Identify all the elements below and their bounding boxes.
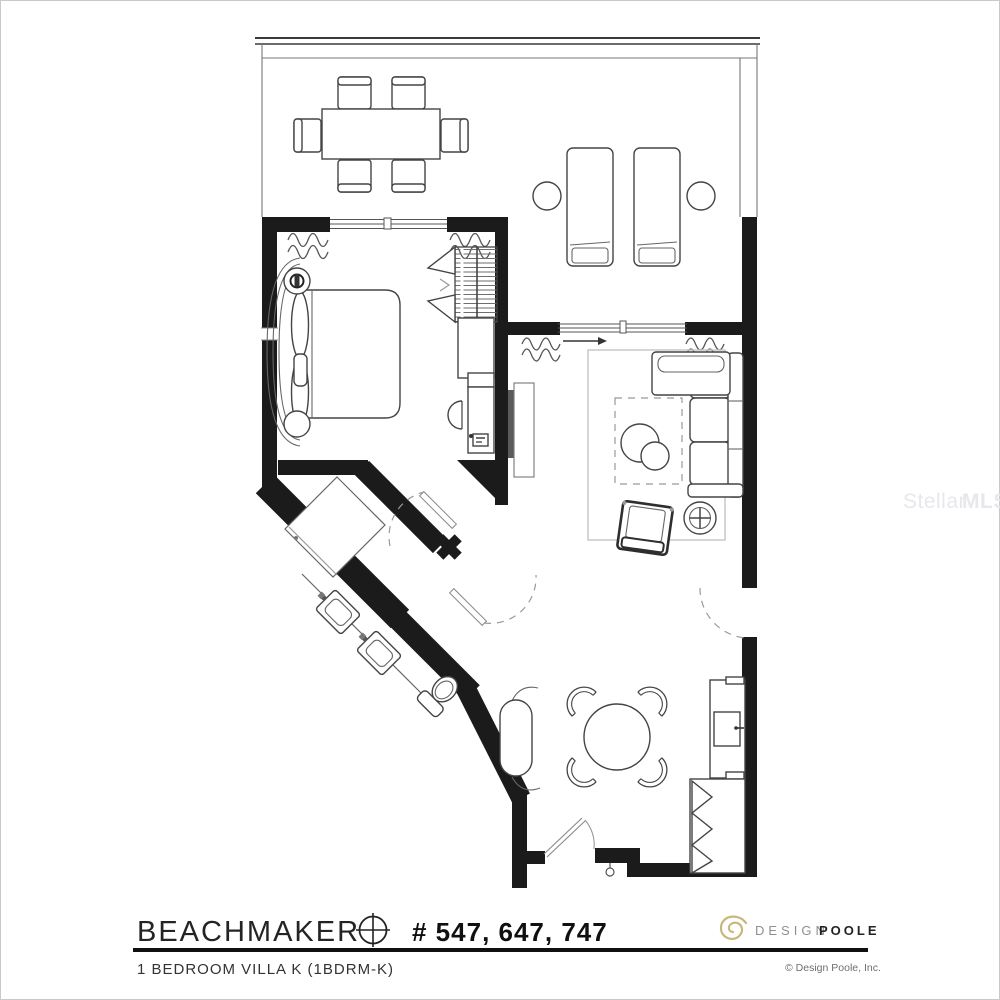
property-name: BEACHMAKER <box>137 916 360 948</box>
wall-bottom-joint <box>627 848 640 877</box>
dresser-icon <box>458 318 494 378</box>
appliance-icon <box>714 712 744 746</box>
unit-type-label: 1 BEDROOM VILLA K (1BDRM-K) <box>137 961 394 978</box>
round-side-table-icon <box>684 502 716 534</box>
nesting-table-icon <box>641 442 669 470</box>
sofa-arm <box>688 484 743 497</box>
watermark-text: Stellar <box>903 490 966 513</box>
tv-icon <box>508 390 514 458</box>
logo-poole-text: POOLE <box>819 923 880 938</box>
window-mullion <box>384 218 391 229</box>
pillow-icon <box>292 292 309 358</box>
unit-numbers: # 547, 647, 747 <box>412 917 608 947</box>
logo-design-text: DESIGN <box>755 923 829 938</box>
wall-bedroom-bottom <box>278 460 368 475</box>
floor-plan-canvas: Stellar MLS BEACHMAKER # 547, 647, 747 1… <box>0 0 1000 1000</box>
deck-table-icon <box>322 109 440 159</box>
chaise-icon <box>652 352 730 395</box>
stellar-mls-watermark: Stellar MLS <box>903 490 1000 513</box>
wall-right-upper <box>742 217 757 588</box>
wall-left <box>262 229 277 489</box>
dining-table-icon <box>584 704 650 770</box>
cabinet-icon <box>468 373 494 387</box>
tv-console <box>514 383 534 477</box>
wall-living-top-left <box>495 322 560 335</box>
watermark-text: MLS <box>962 490 1000 513</box>
stool-icon <box>284 411 310 437</box>
mattress <box>303 290 400 418</box>
armchair-icon <box>616 501 674 556</box>
wall-entry-left <box>512 795 527 888</box>
window-mullion <box>620 321 626 333</box>
bolster-pillow <box>294 354 307 386</box>
floor-plan-page: Stellar MLS BEACHMAKER # 547, 647, 747 1… <box>0 0 1000 1000</box>
side-table-icon <box>687 182 715 210</box>
wall-entry-stub <box>527 851 545 864</box>
closet-rod-hatch <box>455 247 497 322</box>
title-rule <box>133 948 868 952</box>
copyright-text: © Design Poole, Inc. <box>785 962 881 974</box>
side-table-icon <box>533 182 561 210</box>
wall-living-top-right <box>685 322 742 335</box>
wall-left-break <box>261 328 278 340</box>
